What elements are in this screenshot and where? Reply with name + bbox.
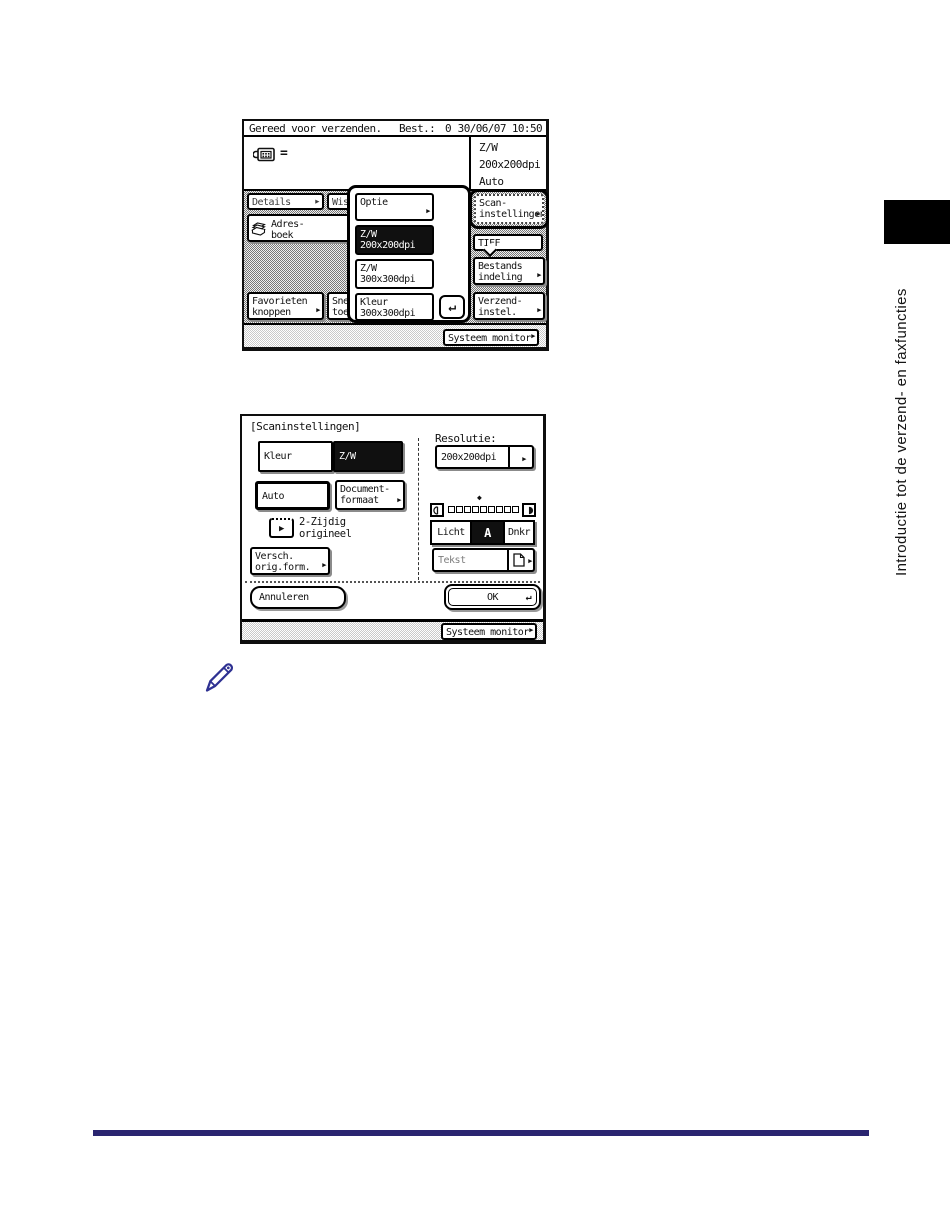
density-scale[interactable] — [448, 506, 520, 514]
info-exposure: Auto — [479, 175, 504, 188]
info-divider — [469, 137, 471, 189]
density-step — [488, 506, 495, 513]
density-step — [480, 506, 487, 513]
fax-equals-symbol: = — [280, 146, 287, 161]
fax-icon — [253, 146, 276, 163]
status-datetime: 30/06/07 10:50 — [458, 122, 542, 135]
bestands-line1: Bestands — [478, 261, 540, 272]
tweezijdig-label-line2: origineel — [299, 528, 351, 540]
info-mode: Z/W — [479, 141, 497, 154]
systeem-monitor-button[interactable]: Systeem monitor ▶ — [443, 329, 539, 346]
optie-button[interactable]: Optie ▶ — [355, 193, 434, 221]
right-arrow-icon: ▶ — [531, 331, 535, 342]
info-resolution: 200x200dpi — [479, 158, 540, 171]
footer-rule — [93, 1130, 869, 1136]
licht-button[interactable]: Licht — [432, 522, 472, 543]
verzend-line2: instel. — [478, 307, 540, 318]
lighter-icon[interactable] — [430, 503, 444, 517]
auto-size-button[interactable]: Auto — [255, 481, 330, 510]
resolutie-label: Resolutie: — [435, 432, 496, 445]
right-arrow-icon: ▶ — [316, 305, 320, 316]
tiff-format-tab: TIFF — [473, 234, 543, 251]
popup-enter-button[interactable]: ↵ — [439, 295, 465, 319]
density-step — [512, 506, 519, 513]
popup-item-zw-200[interactable]: Z/W 200x200dpi — [355, 225, 434, 255]
dnkr-button[interactable]: Dnkr — [505, 522, 533, 543]
systeem-monitor-button[interactable]: Systeem monitor ▶ — [441, 623, 537, 640]
density-marker-diamond-icon: ◆ — [477, 493, 482, 502]
versch-line2: orig.form. — [255, 562, 325, 573]
scan-instellingen-button[interactable]: Scan- instellingen ▶ — [474, 194, 544, 224]
ok-label: OK — [449, 592, 536, 603]
auto-label: Auto — [262, 491, 284, 502]
note-pencil-icon — [201, 657, 237, 697]
density-step — [472, 506, 479, 513]
optie-label: Optie — [360, 197, 388, 208]
origineeltype-dropdown[interactable]: Tekst ▶ — [432, 548, 535, 572]
right-arrow-icon: ▶ — [529, 625, 533, 636]
annuleren-label: Annuleren — [259, 592, 309, 603]
zw-label: Z/W — [339, 451, 356, 462]
systeem-monitor-label: Systeem monitor — [446, 627, 529, 638]
dnkr-label: Dnkr — [508, 527, 530, 538]
density-step — [456, 506, 463, 513]
verzend-line1: Verzend- — [478, 296, 540, 307]
status-bar: Gereed voor verzenden. Best.: 0 30/06/07… — [249, 122, 542, 135]
kleur-button[interactable]: Kleur — [258, 441, 333, 472]
resolutie-dropdown[interactable]: 200x200dpi ▶ — [435, 445, 534, 469]
popup-item-line2: 300x300dpi — [360, 308, 429, 319]
documentformaat-button[interactable]: Document- formaat ▶ — [335, 480, 405, 510]
screenshot-send-screen: Gereed voor verzenden. Best.: 0 30/06/07… — [242, 119, 549, 351]
tweezijdig-label-line1: 2-Zijdig — [299, 516, 346, 528]
right-arrow-icon: ▶ — [322, 560, 326, 571]
enter-icon: ↵ — [448, 300, 455, 315]
versch-origform-button[interactable]: Versch. orig.form. ▶ — [250, 547, 330, 575]
bestands-line2: indeling — [478, 272, 540, 283]
snelkies-label-line2: toets — [332, 307, 348, 318]
adresboek-button[interactable]: Adres- boek — [247, 214, 350, 242]
adresboek-label-line1: Adres- — [271, 219, 304, 230]
ok-button[interactable]: OK ↵ — [444, 584, 541, 610]
popup-item-line1: Z/W — [360, 229, 429, 240]
status-dest-label: Best.: — [399, 122, 435, 135]
popup-item-zw-300[interactable]: Z/W 300x300dpi — [355, 259, 434, 289]
bestandsindeling-button[interactable]: Bestands indeling ▶ — [473, 257, 545, 285]
dialog-separator — [245, 581, 540, 583]
address-book-icon — [251, 221, 268, 236]
density-step — [496, 506, 503, 513]
annuleren-button[interactable]: Annuleren — [250, 586, 346, 609]
snelkies-label-line1: Snelki — [332, 296, 348, 307]
auto-exposure-button[interactable]: A — [472, 522, 505, 543]
screenshot-scan-settings: [Scaninstellingen] Kleur Z/W Auto Docume… — [240, 414, 546, 644]
versch-line1: Versch. — [255, 551, 325, 562]
popup-item-line1: Kleur — [360, 297, 429, 308]
density-step — [448, 506, 455, 513]
scan-instellingen-line2: instellingen — [479, 209, 539, 220]
enter-icon: ↵ — [525, 592, 531, 603]
dialog-title: [Scaninstellingen] — [250, 420, 360, 433]
favorieten-label-line1: Favorieten — [252, 296, 319, 307]
right-arrow-icon: ▶ — [279, 524, 284, 534]
details-label: Details — [252, 197, 291, 208]
favorieten-label-line2: knoppen — [252, 307, 319, 318]
document-page-icon — [513, 553, 525, 567]
licht-label: Licht — [437, 527, 465, 538]
popup-item-line2: 200x200dpi — [360, 240, 429, 251]
popup-item-kleur-300[interactable]: Kleur 300x300dpi — [355, 293, 434, 321]
details-button[interactable]: Details ▶ — [247, 193, 324, 210]
exposure-segment-control: Licht A Dnkr — [430, 520, 535, 545]
chapter-title-vertical: Introductie tot de verzend- en faxfuncti… — [893, 248, 919, 616]
chevron-right-icon: ▶ — [528, 556, 532, 567]
right-arrow-icon: ▶ — [536, 209, 540, 220]
status-dest-count: 0 — [445, 122, 451, 135]
popup-item-line1: Z/W — [360, 263, 429, 274]
auto-exposure-label: A — [484, 526, 491, 540]
scan-settings-popup: Optie ▶ Z/W 200x200dpi Z/W 300x300dpi Kl… — [347, 185, 471, 323]
tweezijdig-toggle[interactable]: ▶ — [269, 518, 294, 538]
tekst-value: Tekst — [438, 555, 466, 566]
right-arrow-icon: ▶ — [426, 206, 430, 217]
right-arrow-icon: ▶ — [537, 270, 541, 281]
systeem-monitor-label: Systeem monitor — [448, 333, 531, 344]
scan-instellingen-line1: Scan- — [479, 198, 539, 209]
chapter-tab — [884, 200, 950, 244]
resolutie-value: 200x200dpi — [441, 452, 496, 463]
density-step — [464, 506, 471, 513]
manual-page: Gereed voor verzenden. Best.: 0 30/06/07… — [0, 0, 950, 1221]
documentformaat-line1: Document- — [340, 484, 400, 495]
kleur-label: Kleur — [264, 451, 292, 462]
column-divider — [418, 438, 419, 580]
dropdown-arrow-box — [508, 447, 532, 467]
chevron-right-icon: ▶ — [522, 454, 526, 465]
darker-icon[interactable] — [522, 503, 536, 517]
zw-button[interactable]: Z/W — [333, 441, 403, 472]
status-ready-text: Gereed voor verzenden. — [249, 122, 382, 135]
right-arrow-icon: ▶ — [537, 305, 541, 316]
documentformaat-line2: formaat — [340, 495, 400, 506]
favorieten-knoppen-button[interactable]: Favorieten knoppen ▶ — [247, 292, 324, 320]
adresboek-label-line2: boek — [271, 230, 293, 241]
status-underline — [244, 135, 546, 137]
right-arrow-icon: ▶ — [397, 495, 401, 506]
popup-item-line2: 300x300dpi — [360, 274, 429, 285]
density-step — [504, 506, 511, 513]
verzendinstellingen-button[interactable]: Verzend- instel. ▶ — [473, 292, 545, 320]
right-arrow-icon: ▶ — [315, 196, 319, 207]
